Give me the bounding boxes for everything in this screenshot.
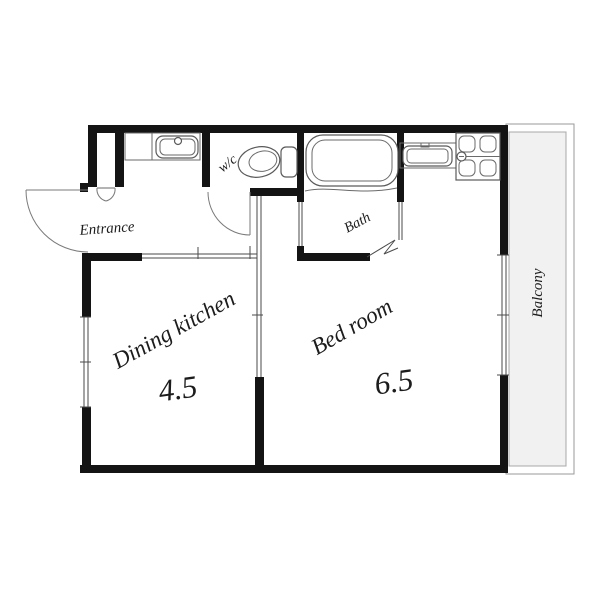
wall-segment	[255, 377, 264, 467]
dining-kitchen-size: 4.5	[156, 368, 199, 408]
sliding-partition-vertical	[252, 196, 263, 377]
floor-plan: Entrance w/c Bath Dining kitchen 4.5 Bed…	[0, 0, 600, 600]
wall-segment	[80, 465, 508, 473]
fixtures	[125, 133, 500, 191]
wall-segment	[88, 125, 97, 187]
wall-segment	[297, 253, 370, 261]
entrance-label: Entrance	[78, 219, 135, 239]
wall-segment	[82, 253, 91, 317]
washbasin	[125, 133, 200, 160]
bifold-bath-door	[367, 240, 398, 257]
wall-segment	[202, 125, 210, 187]
wall-segment	[80, 183, 88, 192]
bedroom-size: 6.5	[372, 361, 415, 401]
wall-segment	[250, 188, 304, 196]
toilet	[235, 143, 297, 181]
kitchen-sink	[400, 143, 456, 168]
windows-and-partitions	[80, 196, 509, 407]
balcony-label: Balcony	[530, 268, 546, 317]
wall-segment	[115, 125, 124, 187]
wall-segment	[88, 125, 505, 133]
wall-segment	[82, 407, 91, 473]
wc-label: w/c	[216, 152, 241, 176]
gas-stove	[456, 133, 500, 180]
bath-label: Bath	[342, 209, 374, 236]
bedroom-label: Bed room	[307, 293, 397, 359]
wall-segment	[500, 375, 508, 472]
bathtub	[305, 135, 398, 191]
window	[80, 317, 91, 407]
dining-kitchen-label: Dining kitchen	[107, 286, 239, 374]
wc-door	[208, 192, 250, 235]
sliding-partition-horizontal	[142, 246, 257, 259]
wall-segment	[88, 253, 142, 261]
wall-segment	[500, 125, 508, 255]
shoe-closet-doors	[97, 188, 115, 201]
floor-plan-page: Entrance w/c Bath Dining kitchen 4.5 Bed…	[0, 0, 600, 600]
entrance-door	[26, 190, 88, 252]
